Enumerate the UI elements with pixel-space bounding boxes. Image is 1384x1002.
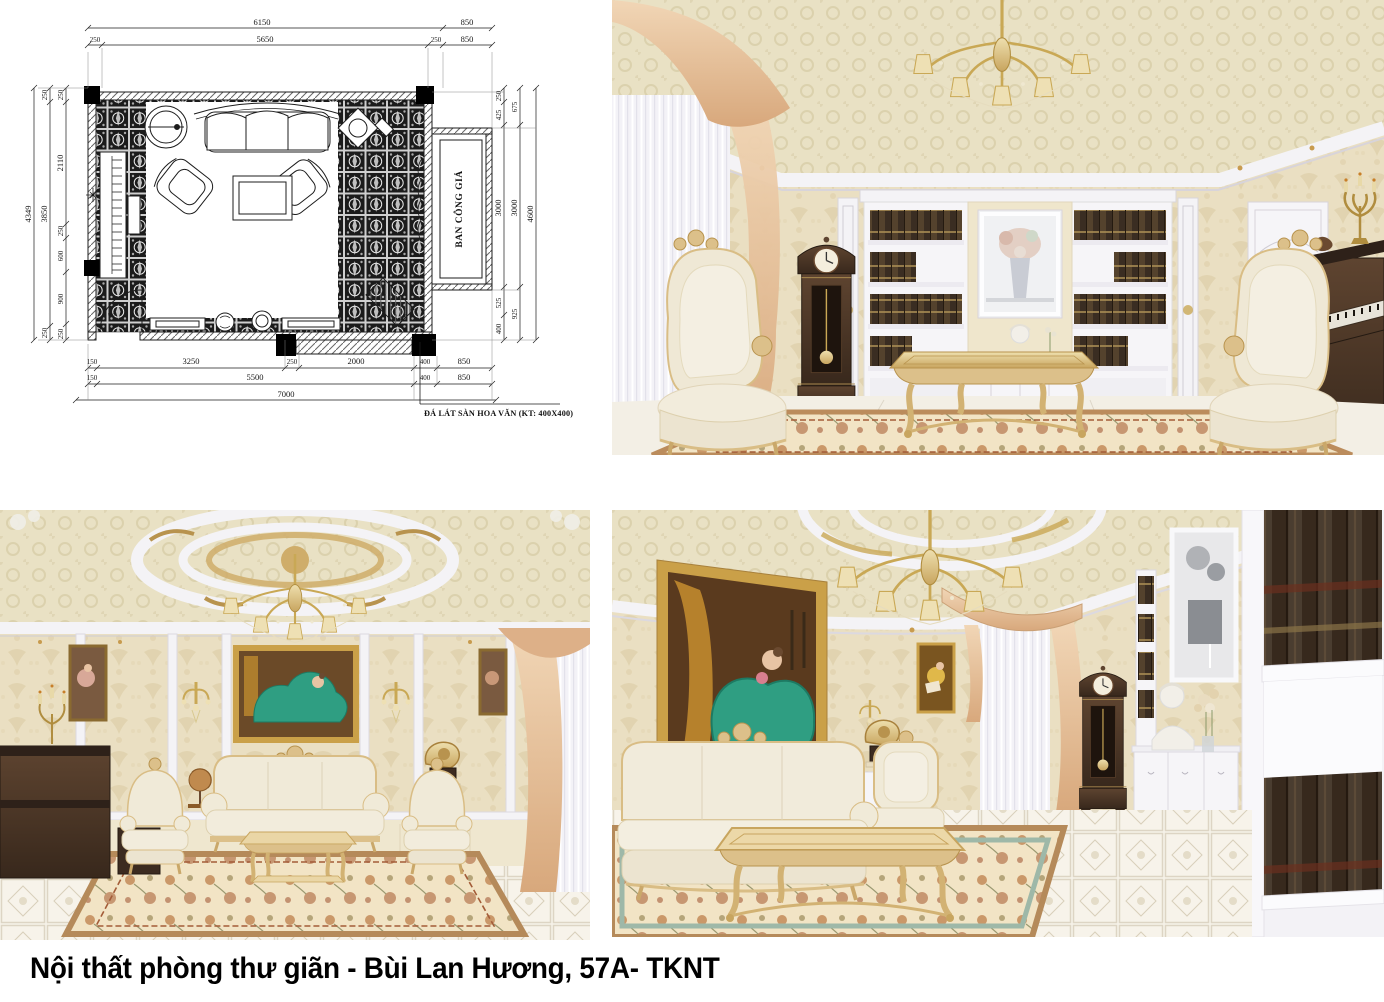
presentation-board: BAN CÔNG GIẢ xyxy=(0,0,1384,1002)
svg-text:7000: 7000 xyxy=(278,389,295,399)
svg-text:150: 150 xyxy=(87,358,98,366)
svg-text:675: 675 xyxy=(511,101,519,112)
svg-text:4600: 4600 xyxy=(525,206,535,223)
svg-text:5500: 5500 xyxy=(247,372,264,382)
flower-painting xyxy=(978,210,1062,318)
svg-text:400: 400 xyxy=(420,358,431,366)
svg-text:5650: 5650 xyxy=(257,34,274,44)
door-width-label: 900 xyxy=(108,312,116,317)
grandfather-clock xyxy=(1080,666,1127,813)
svg-text:250: 250 xyxy=(495,90,503,101)
svg-text:850: 850 xyxy=(461,34,474,44)
render-bottom-right xyxy=(612,442,1384,937)
presentation-graphic: BAN CÔNG GIẢ xyxy=(0,0,1384,1002)
svg-text:6150: 6150 xyxy=(254,17,271,27)
svg-text:400: 400 xyxy=(420,374,431,382)
svg-text:250: 250 xyxy=(57,328,65,339)
svg-text:525: 525 xyxy=(495,297,503,308)
svg-text:250: 250 xyxy=(41,89,49,100)
svg-text:3000: 3000 xyxy=(493,200,503,217)
sofa xyxy=(618,723,878,900)
plan-coffee-table xyxy=(233,176,292,220)
svg-text:900: 900 xyxy=(57,293,65,304)
svg-text:4349: 4349 xyxy=(23,206,33,223)
svg-text:250: 250 xyxy=(57,225,65,236)
bookshelf-right xyxy=(1242,494,1384,937)
svg-text:925: 925 xyxy=(511,308,519,319)
painting-left xyxy=(70,646,106,720)
svg-text:600: 600 xyxy=(57,250,65,261)
painting-right xyxy=(480,650,506,714)
floor-note: ĐÁ LÁT SÀN HOA VĂN (KT: 400X400) xyxy=(424,408,573,418)
svg-text:425: 425 xyxy=(495,109,503,120)
render-top-right xyxy=(612,0,1384,464)
painting-green-lady xyxy=(236,648,356,740)
svg-text:250: 250 xyxy=(287,358,298,366)
svg-text:2110: 2110 xyxy=(55,155,65,172)
svg-text:250: 250 xyxy=(41,327,49,338)
svg-text:3000: 3000 xyxy=(509,200,519,217)
svg-text:850: 850 xyxy=(458,372,471,382)
svg-text:250: 250 xyxy=(57,89,65,100)
plan-sofa xyxy=(205,111,330,152)
render-bottom-left xyxy=(0,510,590,940)
svg-text:850: 850 xyxy=(461,17,474,27)
svg-text:250: 250 xyxy=(431,36,442,44)
svg-text:3250: 3250 xyxy=(183,356,200,366)
svg-text:2000: 2000 xyxy=(348,356,365,366)
floor-plan: BAN CÔNG GIẢ xyxy=(23,17,573,418)
painting-reading-girl xyxy=(918,644,954,712)
svg-text:400: 400 xyxy=(495,323,503,334)
svg-text:3850: 3850 xyxy=(39,206,49,223)
ceiling-medallion xyxy=(802,442,1102,566)
svg-text:850: 850 xyxy=(458,356,471,366)
svg-text:250: 250 xyxy=(90,36,101,44)
grandfather-clock xyxy=(798,237,855,417)
plan-round-table xyxy=(145,106,187,148)
wall-unit xyxy=(838,190,1198,432)
svg-text:150: 150 xyxy=(87,374,98,382)
caption: Nội thất phòng thư giãn - Bùi Lan Hương,… xyxy=(30,952,719,986)
